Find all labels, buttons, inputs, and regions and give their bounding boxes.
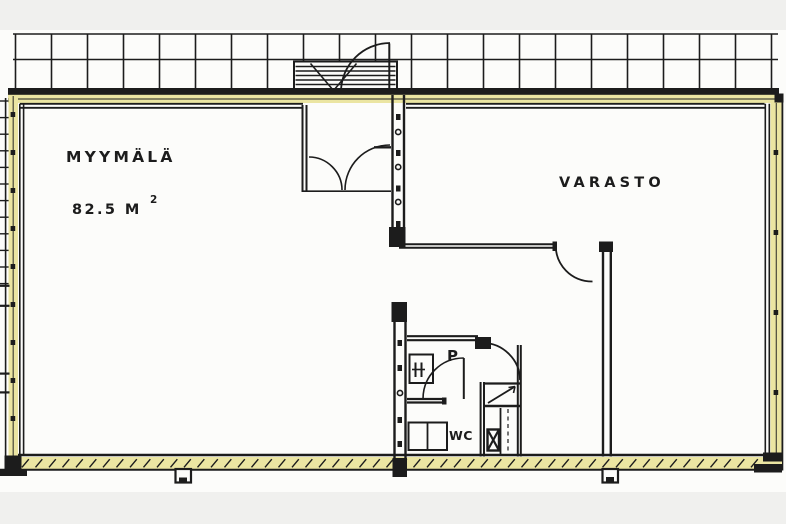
- wall-stud-mark: [11, 378, 16, 383]
- wall-stud-mark: [11, 150, 16, 155]
- pilaster-right-pad: [606, 477, 614, 483]
- bottom-margin: [0, 492, 786, 524]
- shop-area-exponent: 2: [150, 194, 157, 206]
- floor-plan-drawing: MYYMÄLÄ 82.5 M 2 VARASTO P WC: [0, 0, 786, 524]
- floor-plan-page: MYYMÄLÄ 82.5 M 2 VARASTO P WC: [0, 0, 786, 524]
- storage-label: VARASTO: [559, 175, 665, 191]
- wall-stud-mark: [11, 264, 16, 269]
- pilaster-left-pad: [179, 478, 187, 483]
- top-margin: [0, 0, 786, 30]
- mullion-dash-mark: [396, 186, 401, 192]
- stud-dash-mark: [398, 441, 403, 447]
- stud-dash-mark: [398, 417, 403, 423]
- stud-dash-mark: [398, 365, 403, 371]
- p-room-label: P: [447, 347, 458, 365]
- wall-stud-mark: [11, 112, 16, 117]
- wall-stud-mark: [774, 230, 779, 235]
- wall-stud-mark: [774, 310, 779, 315]
- stud-dash-mark: [398, 340, 403, 346]
- wall-stud-mark: [11, 188, 16, 193]
- mullion-dash-mark: [396, 221, 401, 227]
- shop-area-label: 82.5 M: [72, 202, 142, 218]
- shop-label: MYYMÄLÄ: [66, 147, 176, 166]
- wall-stud-mark: [774, 390, 779, 395]
- bottom-left-footing: [0, 470, 27, 476]
- wall-stud-mark: [11, 302, 16, 307]
- exterior-wall-top-edge: [8, 88, 779, 95]
- wc-label: WC: [449, 428, 473, 443]
- bottom-left-corner: [5, 456, 22, 472]
- wall-stud-mark: [11, 416, 16, 421]
- mullion-dash-mark: [396, 150, 401, 156]
- mullion-dash-mark: [396, 114, 401, 120]
- wall-stud-mark: [11, 340, 16, 345]
- bottom-right-corner: [763, 453, 783, 462]
- bottom-right-footing: [754, 464, 782, 473]
- wall-stud-mark: [11, 226, 16, 231]
- partition-bottom-cap: [393, 458, 408, 477]
- partition-top-cap: [392, 302, 408, 322]
- wall-stud-mark: [774, 150, 779, 155]
- wall-end-cap: [442, 398, 447, 405]
